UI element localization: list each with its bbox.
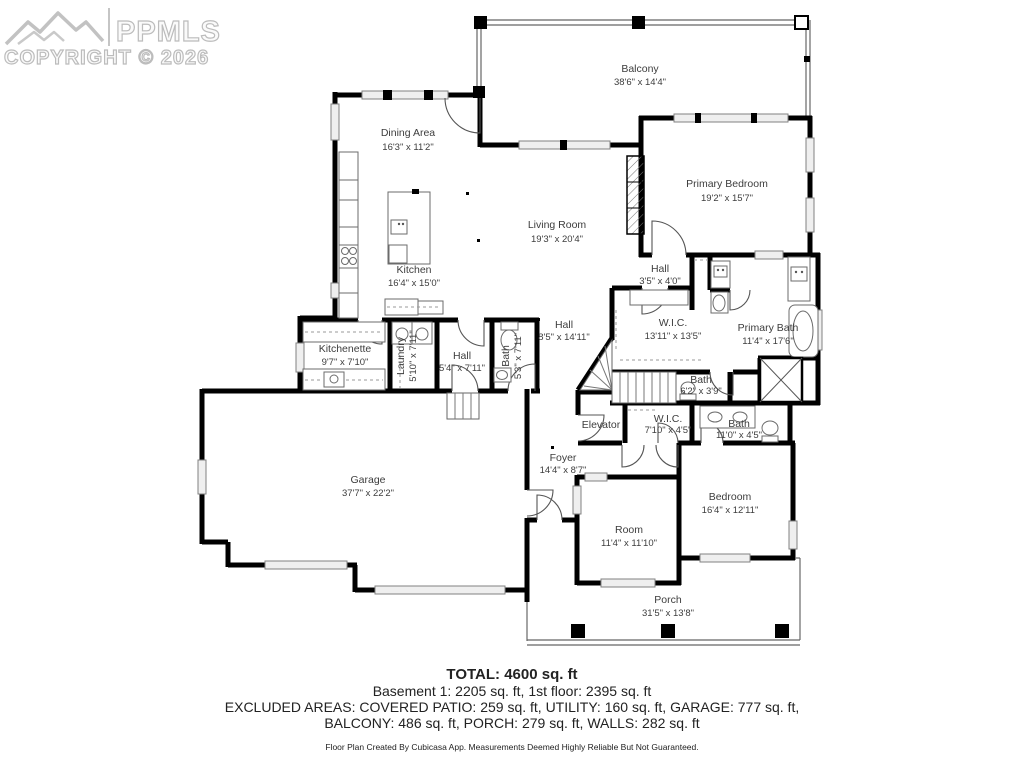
room-label-hall-main: Hall 8'5" x 14'11" <box>538 319 589 343</box>
mountain-logo-icon <box>6 8 109 46</box>
summary-total: TOTAL: 4600 sq. ft <box>446 666 577 683</box>
svg-text:11'4" x 17'6": 11'4" x 17'6" <box>742 336 793 347</box>
svg-text:16'4" x 12'11": 16'4" x 12'11" <box>702 505 759 516</box>
shower <box>760 358 802 402</box>
summary-excluded-2: BALCONY: 486 sq. ft, PORCH: 279 sq. ft, … <box>324 715 699 731</box>
floor-plan-page: PPMLS COPYRIGHT © 2026 <box>0 0 1024 767</box>
svg-text:37'7" x 22'2": 37'7" x 22'2" <box>342 488 394 499</box>
room-label-living-room: Living Room 19'3" x 20'4" <box>528 219 587 245</box>
room-label-elevator: Elevator <box>582 419 621 431</box>
svg-text:Bath: Bath <box>690 374 712 386</box>
svg-text:W.I.C.: W.I.C. <box>659 317 688 329</box>
svg-text:11'4" x 11'10": 11'4" x 11'10" <box>601 538 657 549</box>
svg-text:8'5" x 14'11": 8'5" x 14'11" <box>538 332 589 343</box>
svg-text:19'3" x 20'4": 19'3" x 20'4" <box>531 234 583 245</box>
watermark-copyright: COPYRIGHT © 2026 <box>4 47 209 69</box>
room-label-garage: Garage 37'7" x 22'2" <box>342 474 394 499</box>
summary-excluded-1: EXCLUDED AREAS: COVERED PATIO: 259 sq. f… <box>225 699 799 715</box>
svg-text:Primary Bath: Primary Bath <box>738 322 799 334</box>
room-label-wic-main: W.I.C. 13'11" x 13'5" <box>645 317 702 342</box>
room-label-primary-bedroom: Primary Bedroom 19'2" x 15'7" <box>686 178 768 204</box>
fireplace <box>627 156 644 234</box>
kitchen-island <box>388 189 430 264</box>
svg-text:5'3" x 7'11": 5'3" x 7'11" <box>513 333 524 379</box>
svg-text:14'4" x 8'7": 14'4" x 8'7" <box>540 465 587 476</box>
area-summary: TOTAL: 4600 sq. ft Basement 1: 2205 sq. … <box>225 666 799 752</box>
svg-text:13'11" x 13'5": 13'11" x 13'5" <box>645 331 702 342</box>
svg-text:Hall: Hall <box>651 263 669 275</box>
room-label-balcony: Balcony 38'6" x 14'4" <box>614 63 666 88</box>
room-label-kitchen: Kitchen 16'4" x 15'0" <box>388 264 440 289</box>
svg-text:Bedroom: Bedroom <box>709 491 752 503</box>
svg-text:6'2" x 3'9": 6'2" x 3'9" <box>680 386 722 397</box>
svg-text:Dining Area: Dining Area <box>381 127 435 139</box>
svg-text:7'10" x 4'5": 7'10" x 4'5" <box>645 425 692 436</box>
svg-text:16'4" x 15'0": 16'4" x 15'0" <box>388 278 440 289</box>
summary-floors: Basement 1: 2205 sq. ft, 1st floor: 2395… <box>373 683 652 699</box>
svg-text:38'6" x 14'4": 38'6" x 14'4" <box>614 77 666 88</box>
svg-text:Bath: Bath <box>728 418 750 430</box>
room-label-bedroom: Bedroom 16'4" x 12'11" <box>702 491 759 516</box>
svg-text:Laundry: Laundry <box>395 336 407 375</box>
svg-text:Living Room: Living Room <box>528 219 587 231</box>
svg-text:Kitchenette: Kitchenette <box>319 343 372 355</box>
room-label-foyer: Foyer 14'4" x 8'7" <box>540 452 587 476</box>
floor-plan-canvas: PPMLS COPYRIGHT © 2026 <box>0 0 1024 767</box>
svg-text:Hall: Hall <box>555 319 573 331</box>
ppmls-watermark: PPMLS COPYRIGHT © 2026 <box>4 8 221 69</box>
room-label-porch: Porch 31'5" x 13'8" <box>642 594 694 619</box>
room-label-room: Room 11'4" x 11'10" <box>601 524 657 549</box>
svg-text:Garage: Garage <box>350 474 385 486</box>
svg-text:Room: Room <box>615 524 643 536</box>
svg-text:16'3" x 11'2": 16'3" x 11'2" <box>382 142 433 153</box>
svg-text:Balcony: Balcony <box>621 63 659 75</box>
svg-text:Bath: Bath <box>500 345 512 367</box>
svg-text:Porch: Porch <box>654 594 682 606</box>
svg-text:11'0" x 4'5": 11'0" x 4'5" <box>716 430 762 441</box>
svg-text:9'7" x 7'10": 9'7" x 7'10" <box>322 357 369 368</box>
room-label-wic-lower: W.I.C. 7'10" x 4'5" <box>645 413 692 436</box>
summary-disclaimer: Floor Plan Created By Cubicasa App. Meas… <box>325 742 698 752</box>
svg-text:Kitchen: Kitchen <box>396 264 431 276</box>
svg-text:5'10" x 7'11": 5'10" x 7'11" <box>408 330 419 381</box>
room-label-bath-mid: Bath 6'2" x 3'9" <box>680 374 722 397</box>
staircases <box>447 340 676 419</box>
svg-text:W.I.C.: W.I.C. <box>654 413 683 425</box>
svg-text:3'5" x 4'0": 3'5" x 4'0" <box>639 276 681 287</box>
svg-text:Foyer: Foyer <box>550 452 577 464</box>
svg-text:31'5" x 13'8": 31'5" x 13'8" <box>642 608 694 619</box>
room-label-hall-upper: Hall 3'5" x 4'0" <box>639 263 681 287</box>
svg-text:Hall: Hall <box>453 350 471 362</box>
room-label-hall-small: Hall 5'4" x 7'11" <box>439 350 485 374</box>
kitchenette-counters <box>303 322 385 390</box>
room-label-dining-area: Dining Area 16'3" x 11'2" <box>381 127 435 153</box>
svg-text:Elevator: Elevator <box>582 419 621 431</box>
svg-text:Primary Bedroom: Primary Bedroom <box>686 178 768 190</box>
room-label-kitchenette: Kitchenette 9'7" x 7'10" <box>319 343 372 368</box>
svg-text:5'4" x 7'11": 5'4" x 7'11" <box>439 363 485 374</box>
svg-text:19'2" x 15'7": 19'2" x 15'7" <box>701 193 753 204</box>
watermark-logo-text: PPMLS <box>116 16 221 48</box>
